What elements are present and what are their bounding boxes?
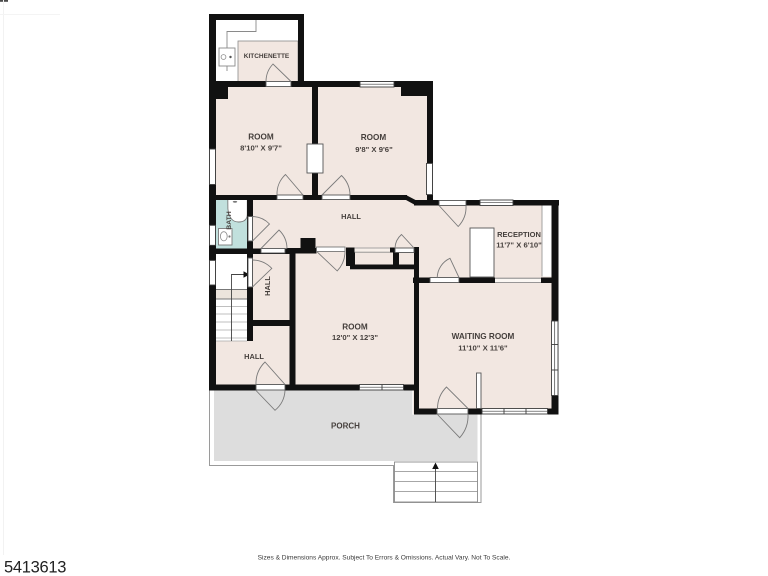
svg-text:RECEPTION: RECEPTION (497, 230, 541, 239)
svg-text:11'10" X 11'6": 11'10" X 11'6" (458, 344, 508, 353)
svg-text:Sizes & Dimensions Approx. Sub: Sizes & Dimensions Approx. Subject To Er… (258, 555, 511, 562)
svg-text:5413613: 5413613 (4, 559, 66, 576)
svg-text:ROOM: ROOM (342, 323, 368, 332)
svg-text:12'0" X 12'3": 12'0" X 12'3" (332, 333, 378, 342)
svg-text:ROOM: ROOM (248, 133, 274, 142)
svg-text:HALL: HALL (263, 276, 272, 296)
svg-text:8'10" X 9'7": 8'10" X 9'7" (240, 144, 282, 153)
svg-text:BATH: BATH (226, 211, 233, 229)
svg-text:PORCH: PORCH (331, 422, 360, 431)
svg-text:ROOM: ROOM (361, 133, 387, 142)
svg-text:HALL: HALL (341, 212, 361, 221)
svg-text:HALL: HALL (244, 352, 264, 361)
svg-text:KITCHENETTE: KITCHENETTE (244, 53, 290, 60)
svg-text:11'7" X 6'10": 11'7" X 6'10" (496, 241, 542, 250)
svg-text:WAITING ROOM: WAITING ROOM (452, 332, 515, 341)
svg-text:9'8" X 9'6": 9'8" X 9'6" (355, 145, 393, 154)
